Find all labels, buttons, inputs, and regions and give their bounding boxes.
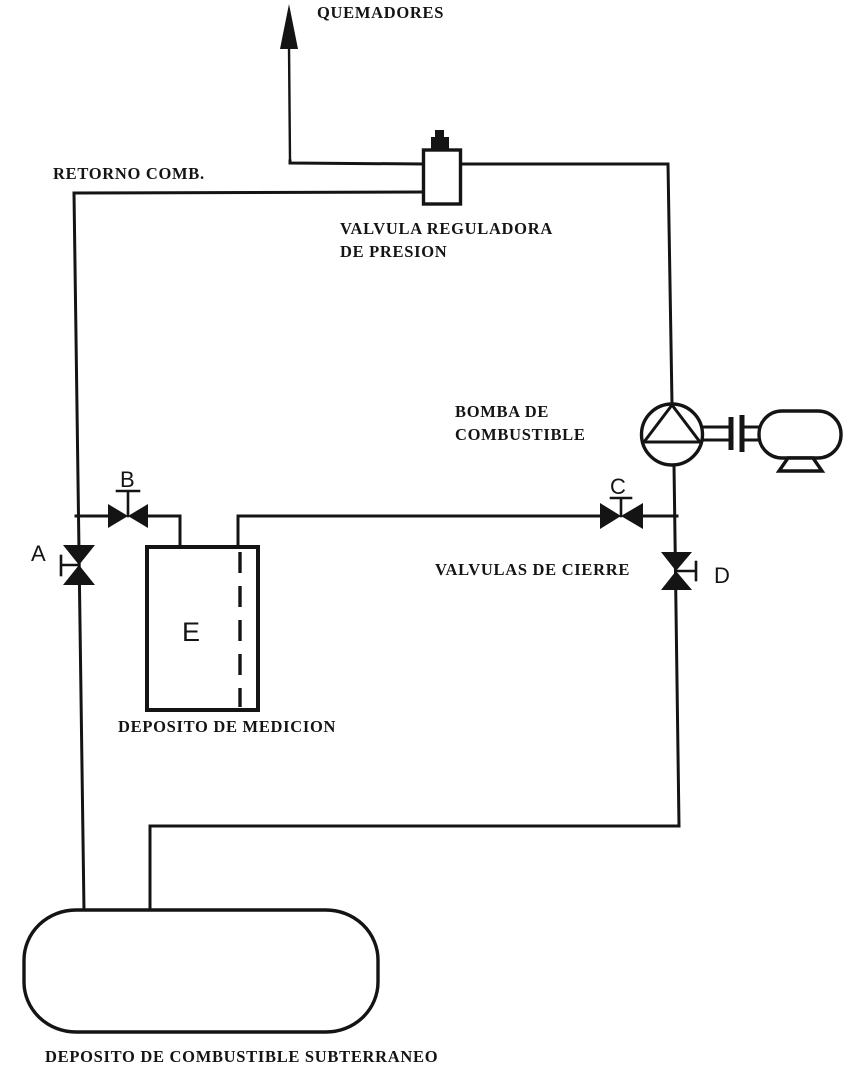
supply-pipe-regulator-to-pump: [460, 164, 672, 404]
diagram-tags: A B C D E: [31, 467, 730, 647]
measuring-tank-tag: E: [182, 617, 200, 647]
underground-tank-label: DEPOSITO DE COMBUSTIBLE SUBTERRANEO: [45, 1047, 438, 1066]
scanned-piping-diagram: QUEMADORES RETORNO COMB. VALVULA REGULAD…: [0, 0, 844, 1074]
pressure-regulator-label-line2: DE PRESION: [340, 242, 447, 261]
valve-b-symbol: [108, 491, 148, 528]
pressure-regulator-label-line1: VALVULA REGULADORA: [340, 219, 553, 238]
burners-arrow: [280, 4, 298, 49]
valve-b-right-triangle: [128, 504, 148, 528]
diagram-canvas: QUEMADORES RETORNO COMB. VALVULA REGULAD…: [0, 0, 844, 1074]
fuel-pump-label-line1: BOMBA DE: [455, 402, 549, 421]
shutoff-valves-label: VALVULAS DE CIERRE: [435, 560, 630, 579]
pressure-regulator-symbol: [424, 130, 461, 204]
supply-pipe-to-regulator: [290, 161, 423, 164]
fuel-pump-label-line2: COMBUSTIBLE: [455, 425, 586, 444]
underground-tank-body: [24, 910, 378, 1032]
motor-body: [759, 411, 841, 458]
valve-a-upper-triangle: [63, 545, 95, 565]
valve-b-tag: B: [120, 467, 135, 492]
valve-d-symbol: [661, 552, 696, 590]
valve-d-tag: D: [714, 563, 730, 588]
valve-b-left-triangle: [108, 504, 128, 528]
valve-d-lower-triangle: [661, 571, 692, 590]
valve-c-symbol: [600, 498, 643, 529]
pressure-regulator-body: [424, 150, 461, 204]
valve-c-right-triangle: [621, 503, 643, 529]
fuel-pump-symbol: [642, 404, 842, 471]
pressure-regulator-knob-top: [435, 130, 444, 137]
valve-b-to-tank-pipe: [148, 516, 180, 546]
measuring-tank-symbol: [147, 547, 258, 710]
burners-label: QUEMADORES: [317, 3, 444, 22]
valve-a-tag: A: [31, 541, 46, 566]
burner-riser-pipe: [289, 46, 290, 161]
fuel-return-label: RETORNO COMB.: [53, 164, 205, 183]
pressure-regulator-knob: [431, 137, 449, 150]
valve-c-tag: C: [610, 474, 626, 499]
valve-a-symbol: [61, 545, 95, 585]
measuring-tank-label: DEPOSITO DE MEDICION: [118, 717, 336, 736]
valve-c-left-triangle: [600, 503, 621, 529]
tank-riser-to-valve-c-pipe: [238, 516, 600, 546]
motor-foot: [779, 458, 822, 471]
burners-arrowhead: [280, 4, 298, 49]
valve-d-upper-triangle: [661, 552, 692, 571]
valve-a-lower-triangle: [63, 565, 95, 585]
